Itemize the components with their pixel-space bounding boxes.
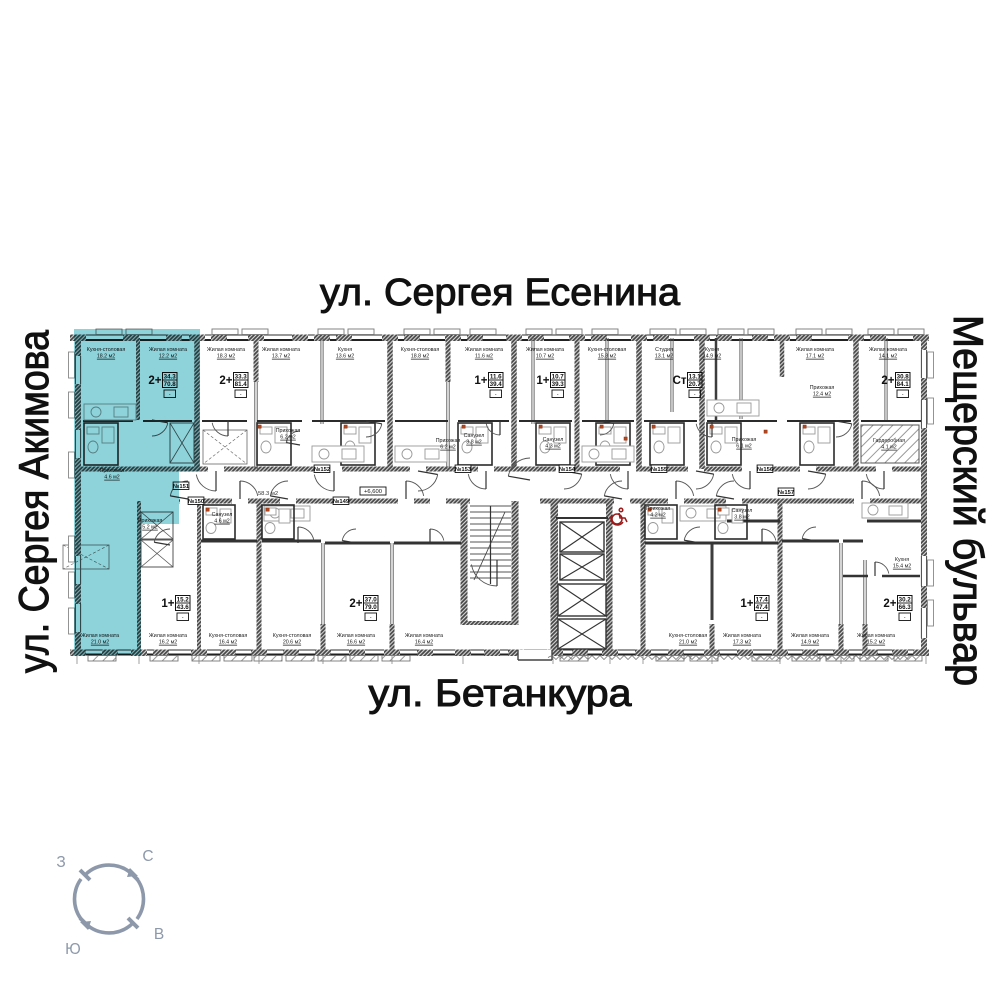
svg-text:№150: №150 [188, 499, 204, 505]
svg-text:Жилая комната: Жилая комната [723, 633, 761, 639]
svg-text:Кухня: Кухня [895, 557, 909, 563]
svg-text:4.2 м2: 4.2 м2 [650, 513, 665, 519]
svg-text:84.1: 84.1 [897, 381, 910, 388]
svg-text:№156: №156 [757, 467, 774, 473]
svg-text:ул. Бетанкура: ул. Бетанкура [369, 673, 633, 715]
svg-text:14.1 м2: 14.1 м2 [879, 354, 897, 360]
svg-text:Жилая комната: Жилая комната [262, 347, 300, 353]
svg-text:-: - [904, 615, 906, 621]
svg-text:15.2: 15.2 [177, 597, 190, 604]
svg-text:2+: 2+ [219, 375, 232, 387]
svg-text:№149: №149 [333, 499, 350, 505]
svg-text:58.3 м2: 58.3 м2 [258, 491, 278, 497]
svg-text:Жилая комната: Жилая комната [857, 633, 895, 639]
svg-text:1+: 1+ [161, 598, 174, 610]
svg-text:15.4 м2: 15.4 м2 [893, 564, 911, 570]
svg-text:4.3 м2: 4.3 м2 [545, 444, 560, 450]
svg-text:10.7 м2: 10.7 м2 [536, 354, 554, 360]
svg-text:10.7: 10.7 [552, 374, 565, 381]
svg-text:Мещерский бульвар: Мещерский бульвар [945, 315, 992, 686]
svg-text:Ю: Ю [65, 941, 81, 958]
svg-text:11.6: 11.6 [490, 374, 502, 381]
svg-text:-: - [694, 392, 696, 398]
svg-text:Жилая комната: Жилая комната [207, 347, 245, 353]
svg-text:-: - [182, 615, 184, 621]
svg-text:Кухня: Кухня [338, 347, 352, 353]
svg-text:-: - [370, 615, 372, 621]
svg-text:Жилая комната: Жилая комната [796, 347, 834, 353]
svg-text:Прихожая: Прихожая [436, 438, 461, 444]
svg-text:14.9 м2: 14.9 м2 [703, 354, 721, 360]
svg-text:16.4 м2: 16.4 м2 [415, 640, 433, 646]
svg-text:-: - [902, 392, 904, 398]
svg-text:16.2 м2: 16.2 м2 [159, 640, 177, 646]
svg-text:Кухня-столовая: Кухня-столовая [588, 347, 627, 353]
svg-text:№153: №153 [455, 467, 472, 473]
svg-text:Кухня-столовая: Кухня-столовая [401, 347, 440, 353]
svg-text:Кухня: Кухня [705, 347, 719, 353]
svg-text:Студия: Студия [655, 347, 673, 353]
svg-text:Кухня-столовая: Кухня-столовая [273, 633, 312, 639]
svg-text:18.3 м2: 18.3 м2 [217, 354, 235, 360]
svg-text:Санузел: Санузел [464, 433, 485, 439]
svg-text:2+: 2+ [881, 375, 894, 387]
svg-text:17.3 м2: 17.3 м2 [733, 640, 751, 646]
svg-text:30.2: 30.2 [899, 597, 912, 604]
svg-text:-: - [557, 392, 559, 398]
svg-text:Жилая комната: Жилая комната [405, 633, 443, 639]
svg-text:18.8 м2: 18.8 м2 [411, 354, 429, 360]
svg-text:2+: 2+ [349, 598, 362, 610]
svg-text:11.6 м2: 11.6 м2 [475, 354, 493, 360]
svg-text:Кухня-столовая: Кухня-столовая [209, 633, 248, 639]
svg-text:1+: 1+ [740, 598, 753, 610]
svg-text:39.4: 39.4 [490, 381, 503, 388]
svg-text:13.6 м2: 13.6 м2 [336, 354, 354, 360]
svg-text:Жилая комната: Жилая комната [791, 633, 829, 639]
svg-text:15.2 м2: 15.2 м2 [867, 640, 885, 646]
svg-text:3.8 м2: 3.8 м2 [734, 515, 749, 521]
svg-text:Гардеробная: Гардеробная [873, 438, 905, 444]
svg-text:13.1 м2: 13.1 м2 [655, 354, 673, 360]
svg-text:-: - [240, 392, 242, 398]
svg-text:-: - [495, 392, 497, 398]
svg-text:37.0: 37.0 [365, 597, 378, 604]
svg-text:13.7 м2: 13.7 м2 [272, 354, 290, 360]
svg-text:20.7: 20.7 [689, 381, 702, 388]
svg-text:Жилая комната: Жилая комната [337, 633, 375, 639]
svg-text:3.8 м2: 3.8 м2 [466, 440, 481, 446]
svg-text:В: В [154, 926, 164, 943]
svg-text:№157: №157 [778, 490, 794, 496]
svg-text:1+: 1+ [536, 375, 549, 387]
svg-text:79.0: 79.0 [365, 604, 378, 611]
svg-text:2+: 2+ [883, 598, 896, 610]
svg-text:Ст: Ст [673, 375, 687, 387]
svg-text:6.2 м2: 6.2 м2 [280, 435, 295, 441]
svg-text:1+: 1+ [474, 375, 487, 387]
svg-text:ул. Сергея Акимова: ул. Сергея Акимова [10, 329, 57, 673]
svg-text:13.1: 13.1 [689, 374, 702, 381]
svg-text:30.8: 30.8 [897, 374, 910, 381]
svg-text:6.2 м2: 6.2 м2 [440, 445, 455, 451]
svg-text:39.3: 39.3 [552, 381, 565, 388]
svg-text:17.4: 17.4 [756, 597, 769, 604]
svg-text:№155: №155 [651, 467, 668, 473]
svg-text:6.1 м2: 6.1 м2 [736, 444, 751, 450]
svg-text:Прихожая: Прихожая [646, 506, 671, 512]
svg-text:14.9 м2: 14.9 м2 [801, 640, 819, 646]
svg-text:47.4: 47.4 [756, 604, 769, 611]
svg-text:4.6 м2: 4.6 м2 [214, 519, 229, 525]
svg-text:Жилая комната: Жилая комната [465, 347, 503, 353]
svg-text:Прихожая: Прихожая [276, 428, 301, 434]
svg-text:Санузел: Санузел [732, 508, 753, 514]
svg-text:Жилая комната: Жилая комната [149, 633, 187, 639]
svg-text:Жилая комната: Жилая комната [869, 347, 907, 353]
svg-text:5.2 м2: 5.2 м2 [142, 525, 157, 531]
svg-text:16.4 м2: 16.4 м2 [219, 640, 237, 646]
svg-text:ул. Сергея Есенина: ул. Сергея Есенина [320, 272, 681, 314]
svg-text:Кухня-столовая: Кухня-столовая [669, 633, 708, 639]
svg-text:№152: №152 [314, 467, 330, 473]
svg-text:4.1 м2: 4.1 м2 [881, 445, 896, 451]
svg-text:№154: №154 [559, 467, 576, 473]
svg-text:+6,600: +6,600 [364, 489, 382, 495]
svg-text:20.6 м2: 20.6 м2 [283, 640, 301, 646]
svg-text:Жилая комната: Жилая комната [526, 347, 564, 353]
svg-text:Санузел: Санузел [212, 512, 233, 518]
svg-text:З: З [56, 854, 65, 871]
svg-text:43.6: 43.6 [177, 604, 190, 611]
svg-text:Прихожая: Прихожая [810, 385, 835, 391]
svg-text:15.8 м2: 15.8 м2 [598, 354, 616, 360]
svg-text:17.1 м2: 17.1 м2 [806, 354, 824, 360]
svg-text:-: - [761, 615, 763, 621]
svg-text:16.6 м2: 16.6 м2 [347, 640, 365, 646]
svg-text:66.3: 66.3 [899, 604, 912, 611]
svg-text:Санузел: Санузел [543, 437, 564, 443]
svg-text:Прихожая: Прихожая [732, 437, 757, 443]
svg-text:81.4: 81.4 [235, 381, 248, 388]
svg-text:21.0 м2: 21.0 м2 [679, 640, 697, 646]
svg-text:С: С [142, 848, 153, 865]
svg-text:33.3: 33.3 [235, 374, 248, 381]
svg-text:12.4 м2: 12.4 м2 [813, 392, 831, 398]
